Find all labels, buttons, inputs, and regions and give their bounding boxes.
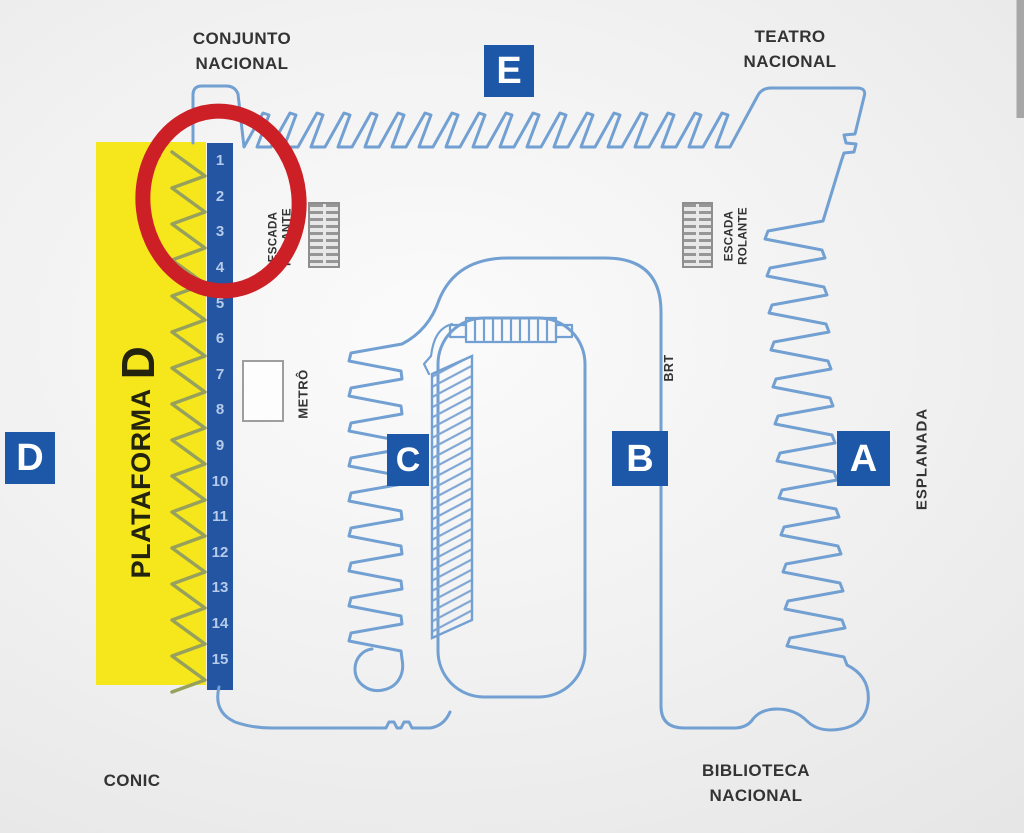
station-map: 123456789101112131415 E D C B A CONJUNTO… (0, 0, 1024, 833)
annotation-stroke-overlap (147, 146, 162, 161)
annotation-circle (134, 103, 308, 298)
annotation-layer (0, 0, 1024, 833)
